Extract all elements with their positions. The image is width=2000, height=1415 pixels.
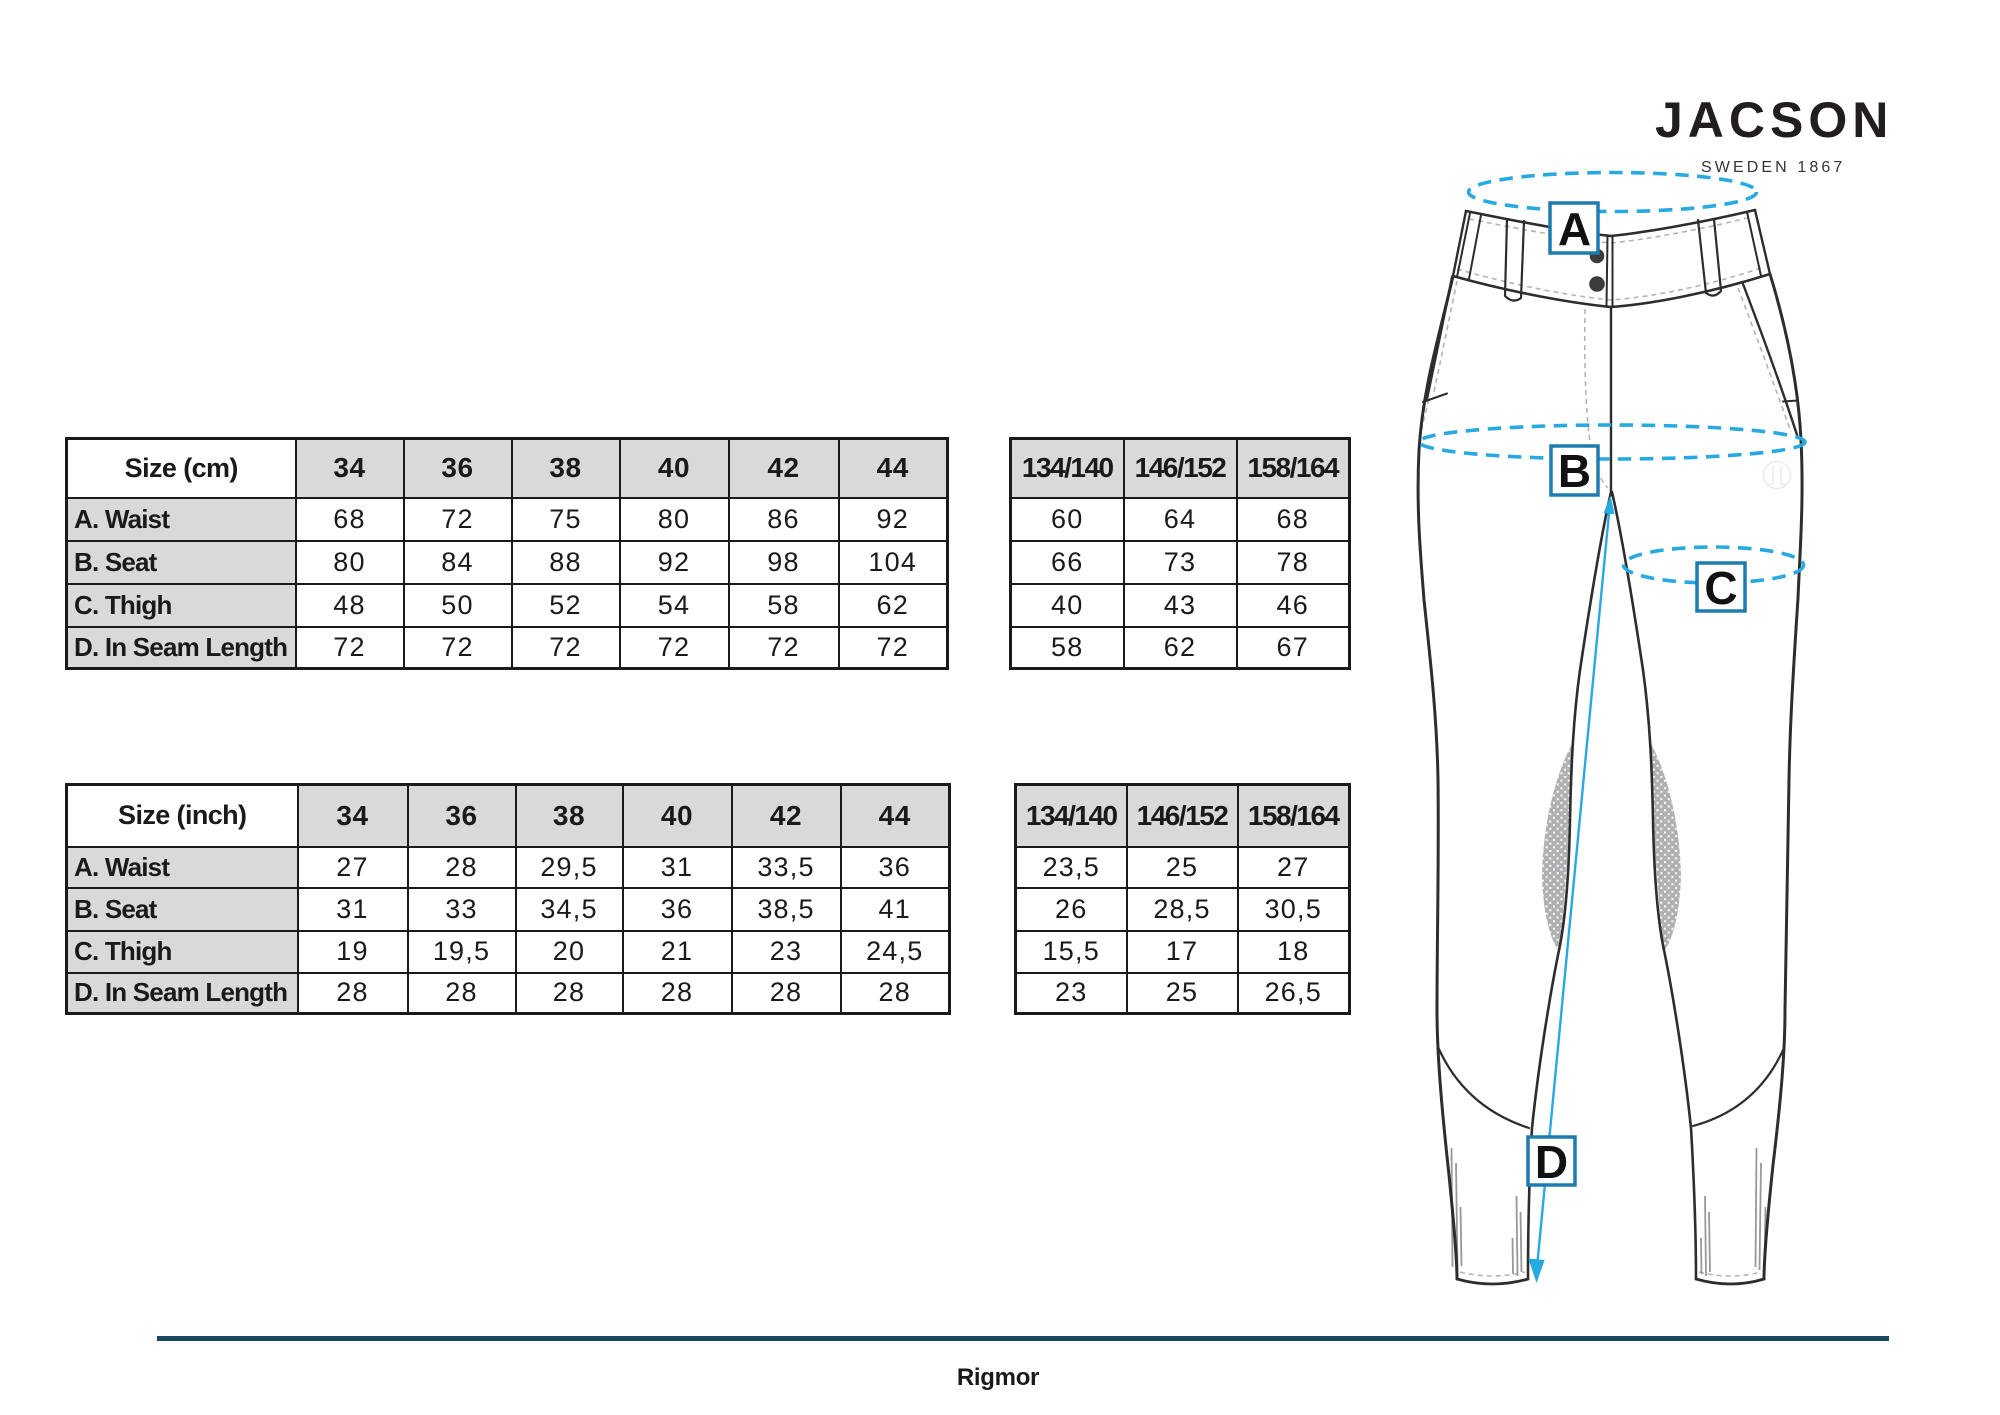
- svg-text:D: D: [1535, 1136, 1568, 1188]
- svg-text:C: C: [1704, 562, 1737, 614]
- svg-text:B: B: [1558, 445, 1591, 497]
- svg-text:A: A: [1558, 203, 1591, 255]
